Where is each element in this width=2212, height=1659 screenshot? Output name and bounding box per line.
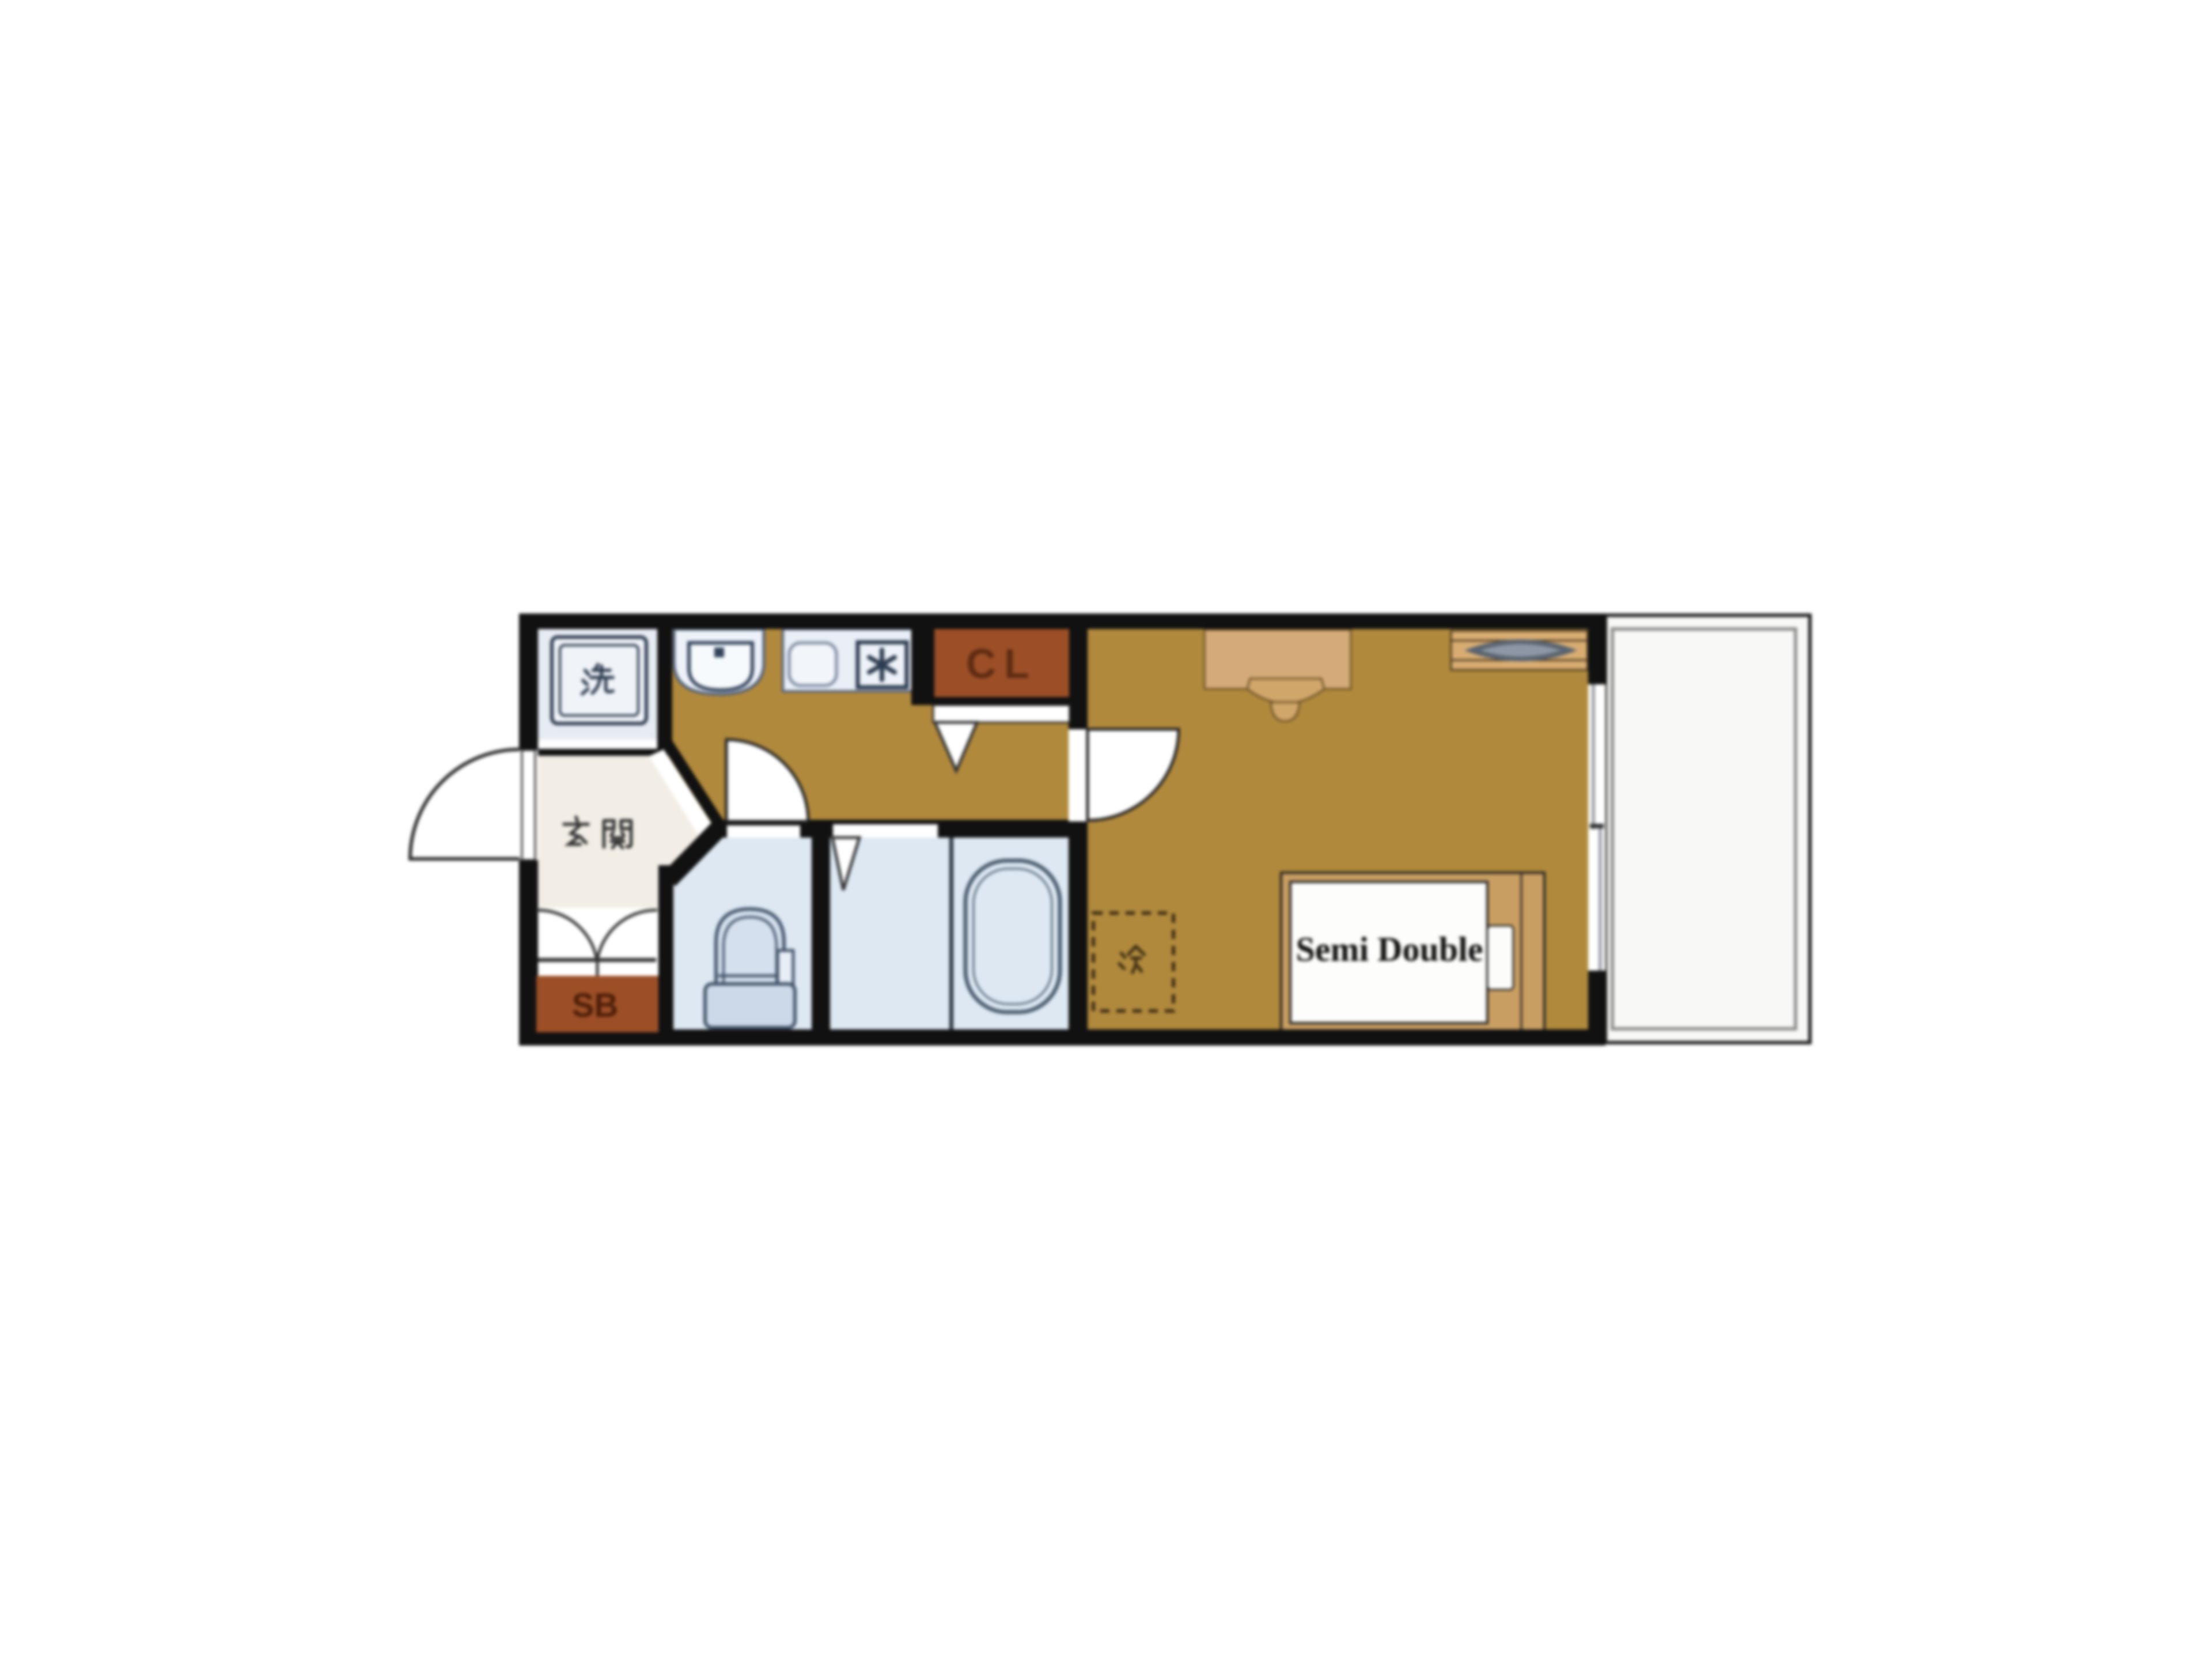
svg-text:Semi Double: Semi Double bbox=[1296, 930, 1483, 968]
svg-text:CL: CL bbox=[966, 641, 1037, 687]
svg-text:SB: SB bbox=[572, 987, 619, 1024]
